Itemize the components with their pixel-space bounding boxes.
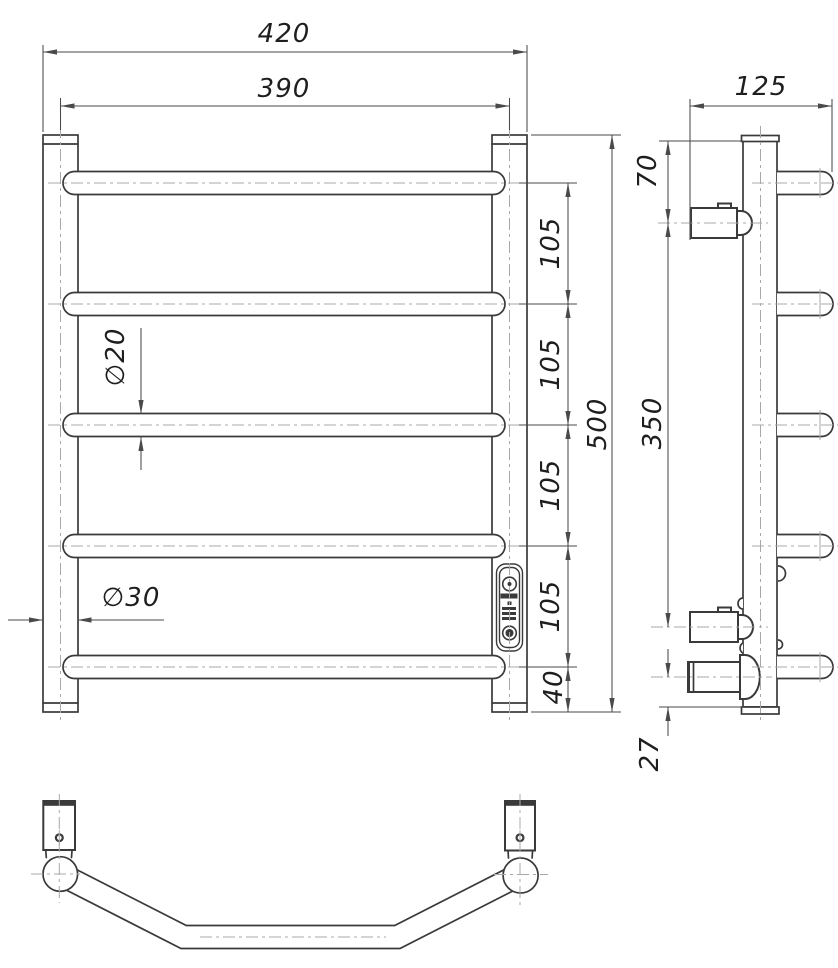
bottom-rail-tube <box>55 864 526 949</box>
side-view <box>651 126 838 721</box>
stud-nub <box>740 643 743 653</box>
dim-label-rung-spacing-4: 105 <box>538 580 564 633</box>
bottom-view <box>31 794 548 949</box>
label-edge-nub <box>778 640 783 649</box>
post-section-right <box>503 801 538 893</box>
dim-label-rung-spacing-1: 105 <box>538 217 564 270</box>
technical-drawing: 420 390 105 105 105 105 40 500 ∅20 ∅30 1… <box>0 0 838 968</box>
dim-label-bracket-spacing: 350 <box>640 397 666 450</box>
dim-label-rung-spacing-2: 105 <box>538 338 564 391</box>
dim-label-side-bottom-offset: 27 <box>637 736 663 771</box>
front-dimensions <box>8 45 621 712</box>
dim-label-top-to-bracket: 70 <box>635 153 661 188</box>
dim-label-side-depth: 125 <box>735 74 788 100</box>
dim-post-diameter <box>8 617 164 622</box>
dim-label-front-overall-width: 420 <box>258 21 311 47</box>
label-edge-nub <box>778 566 786 581</box>
dim-rung-diameter <box>138 328 143 470</box>
dim-label-post-diameter: ∅30 <box>102 585 161 611</box>
dim-label-front-rail-center-width: 390 <box>258 76 311 102</box>
stud-nub <box>738 598 743 609</box>
post-section-left <box>43 801 78 891</box>
drawing-linework <box>0 0 838 968</box>
dim-label-overall-height: 500 <box>585 398 611 451</box>
dim-label-rung-diameter: ∅20 <box>103 328 129 387</box>
dim-label-bottom-offset: 40 <box>541 669 567 704</box>
front-view <box>43 126 527 721</box>
dim-label-rung-spacing-3: 105 <box>538 459 564 512</box>
